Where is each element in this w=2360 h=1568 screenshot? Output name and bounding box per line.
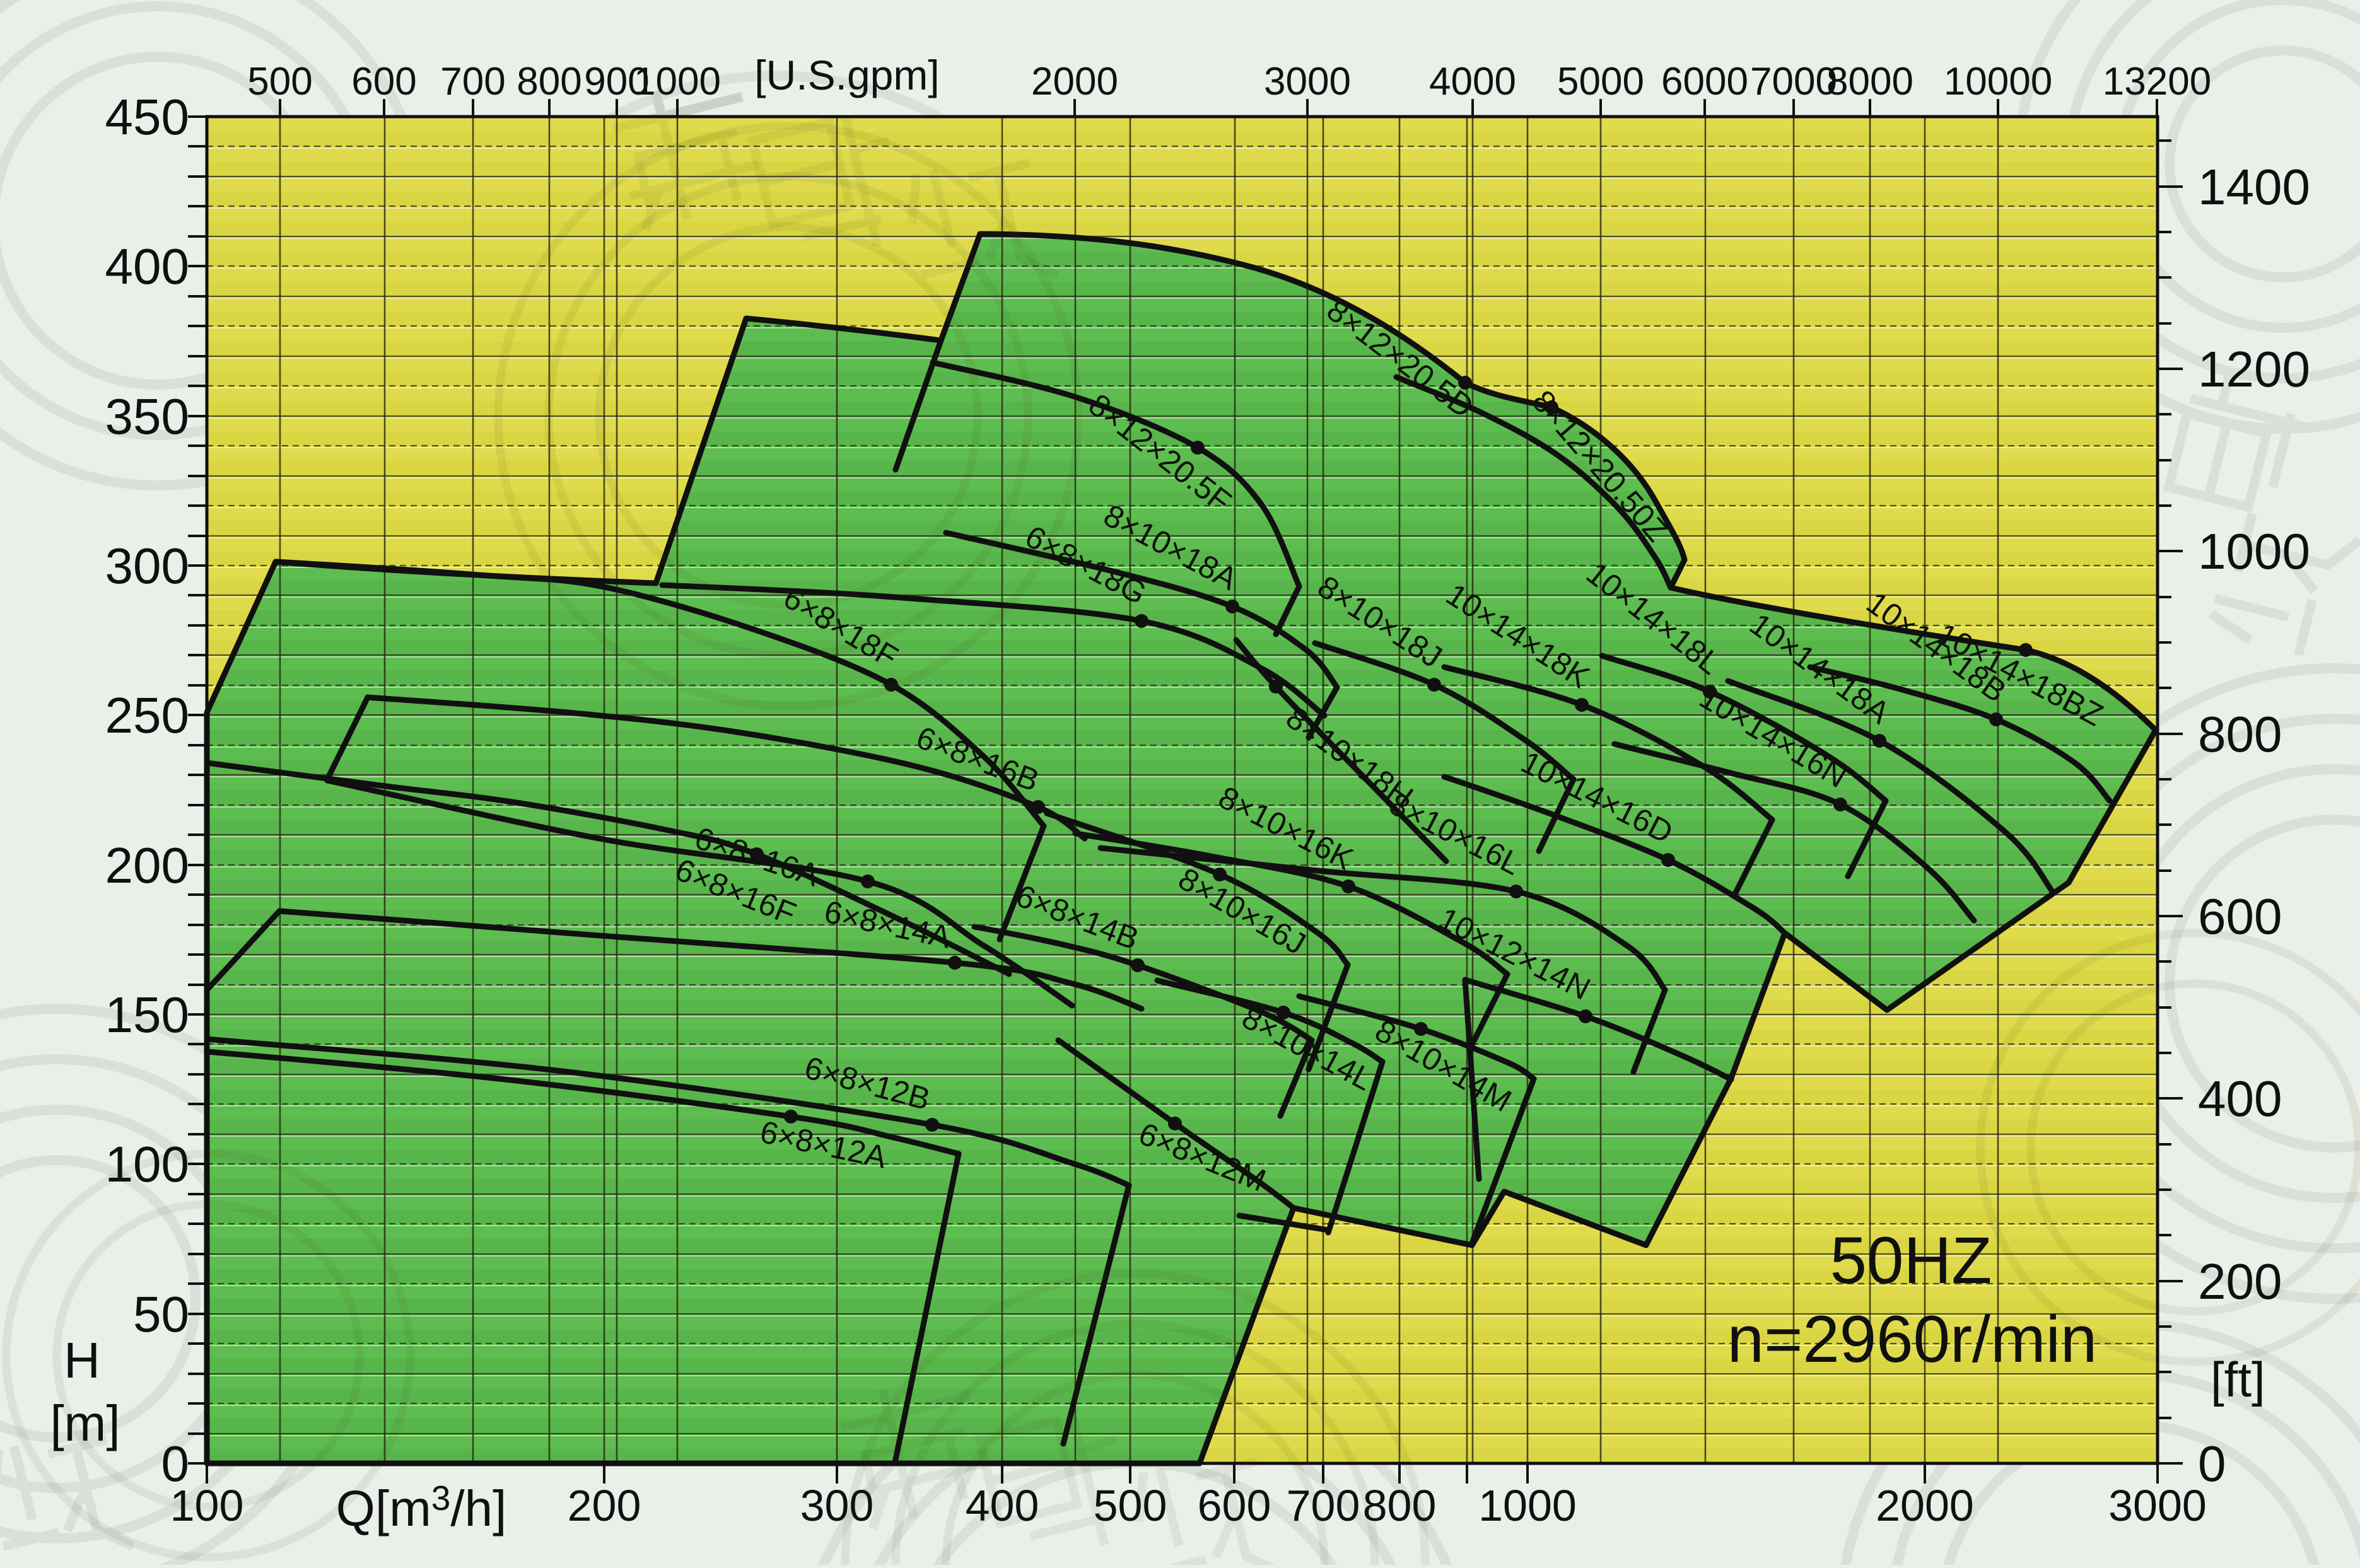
svg-text:Q[m3/h]: Q[m3/h] (336, 1478, 507, 1536)
svg-text:13200: 13200 (2103, 60, 2211, 103)
svg-text:800: 800 (517, 60, 581, 103)
svg-text:H: H (64, 1332, 100, 1388)
svg-text:1400: 1400 (2198, 159, 2310, 215)
svg-text:n=2960r/min: n=2960r/min (1727, 1303, 2098, 1376)
svg-text:100: 100 (105, 1136, 189, 1192)
svg-text:200: 200 (105, 837, 189, 893)
svg-text:800: 800 (1363, 1481, 1437, 1530)
svg-text:400: 400 (966, 1481, 1039, 1530)
svg-text:50: 50 (133, 1286, 189, 1342)
svg-text:400: 400 (2198, 1071, 2282, 1127)
svg-text:400: 400 (105, 238, 189, 294)
svg-text:800: 800 (2198, 706, 2282, 762)
svg-text:3000: 3000 (1264, 60, 1351, 103)
svg-text:1000: 1000 (1478, 1481, 1577, 1530)
svg-text:300: 300 (800, 1481, 874, 1530)
svg-text:1000: 1000 (2198, 523, 2310, 579)
svg-text:5000: 5000 (1557, 60, 1644, 103)
svg-text:350: 350 (105, 388, 189, 444)
svg-text:1000: 1000 (634, 60, 721, 103)
svg-text:100: 100 (170, 1481, 244, 1530)
svg-text:2000: 2000 (1876, 1481, 1974, 1530)
svg-text:250: 250 (105, 687, 189, 743)
svg-text:3000: 3000 (2108, 1481, 2207, 1530)
svg-text:150: 150 (105, 987, 189, 1043)
svg-text:700: 700 (1287, 1481, 1360, 1530)
svg-text:700: 700 (440, 60, 505, 103)
svg-text:[U.S.gpm]: [U.S.gpm] (754, 52, 939, 98)
svg-text:[ft]: [ft] (2211, 1352, 2265, 1407)
svg-text:7000: 7000 (1750, 60, 1837, 103)
svg-text:2000: 2000 (1031, 60, 1118, 103)
svg-text:200: 200 (568, 1481, 641, 1530)
svg-text:50HZ: 50HZ (1830, 1224, 1992, 1298)
svg-text:600: 600 (2198, 888, 2282, 944)
svg-text:1200: 1200 (2198, 341, 2310, 397)
svg-text:450: 450 (105, 89, 189, 145)
svg-text:300: 300 (105, 538, 189, 594)
svg-text:[m]: [m] (50, 1395, 120, 1451)
svg-text:8000: 8000 (1826, 60, 1913, 103)
svg-text:4000: 4000 (1429, 60, 1516, 103)
svg-text:6000: 6000 (1661, 60, 1748, 103)
svg-text:0: 0 (2198, 1436, 2226, 1492)
svg-text:500: 500 (247, 60, 312, 103)
svg-text:500: 500 (1094, 1481, 1167, 1530)
svg-text:600: 600 (351, 60, 416, 103)
svg-text:200: 200 (2198, 1253, 2282, 1310)
svg-text:600: 600 (1198, 1481, 1271, 1530)
svg-text:10000: 10000 (1944, 60, 2052, 103)
